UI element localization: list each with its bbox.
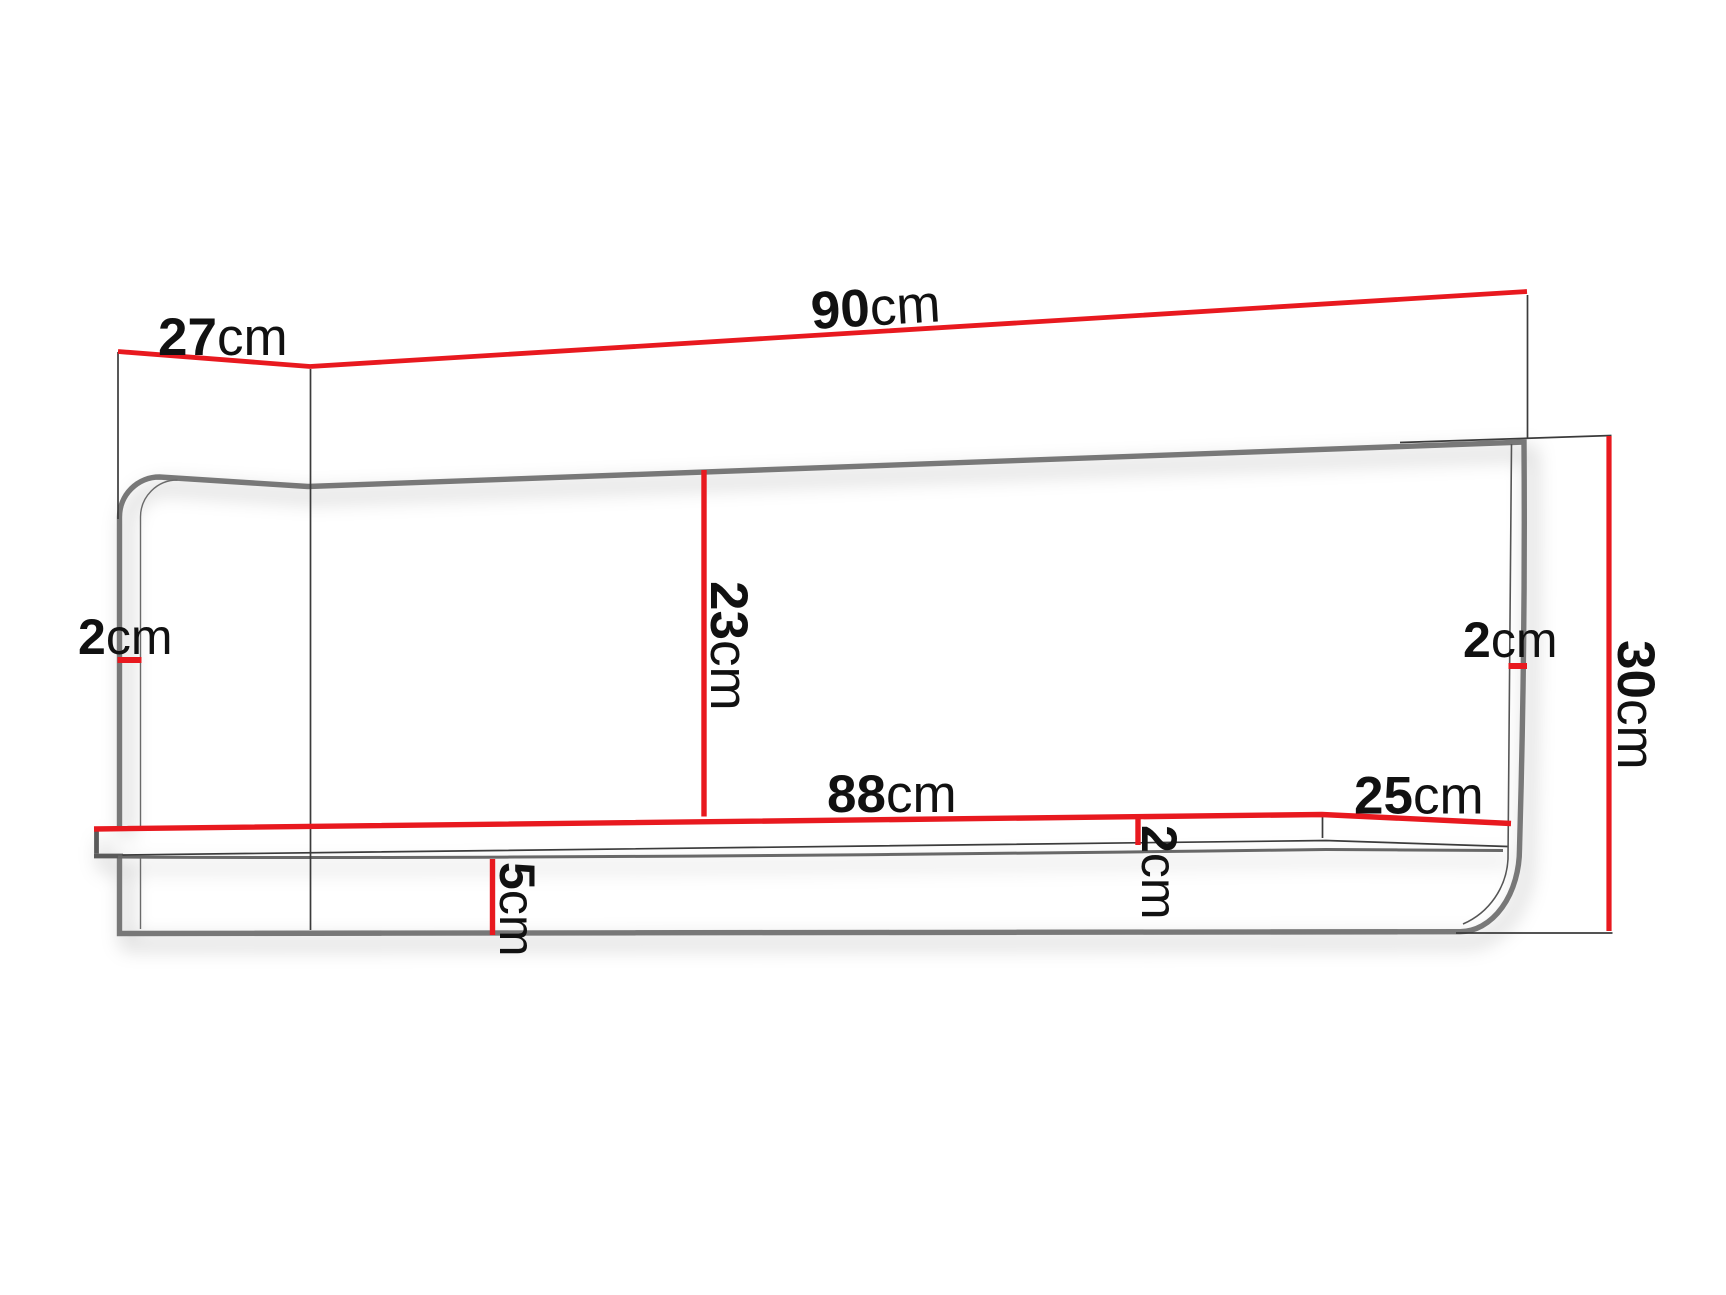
svg-text:25cm: 25cm <box>1354 767 1484 826</box>
svg-text:23cm: 23cm <box>699 581 758 711</box>
svg-text:30cm: 30cm <box>1606 640 1665 770</box>
svg-text:2cm: 2cm <box>1463 612 1557 668</box>
svg-text:2cm: 2cm <box>78 609 172 665</box>
svg-text:5cm: 5cm <box>489 862 545 956</box>
svg-text:27cm: 27cm <box>158 308 288 367</box>
svg-text:88cm: 88cm <box>827 765 957 824</box>
svg-text:2cm: 2cm <box>1131 825 1187 919</box>
svg-text:90cm: 90cm <box>809 274 942 341</box>
